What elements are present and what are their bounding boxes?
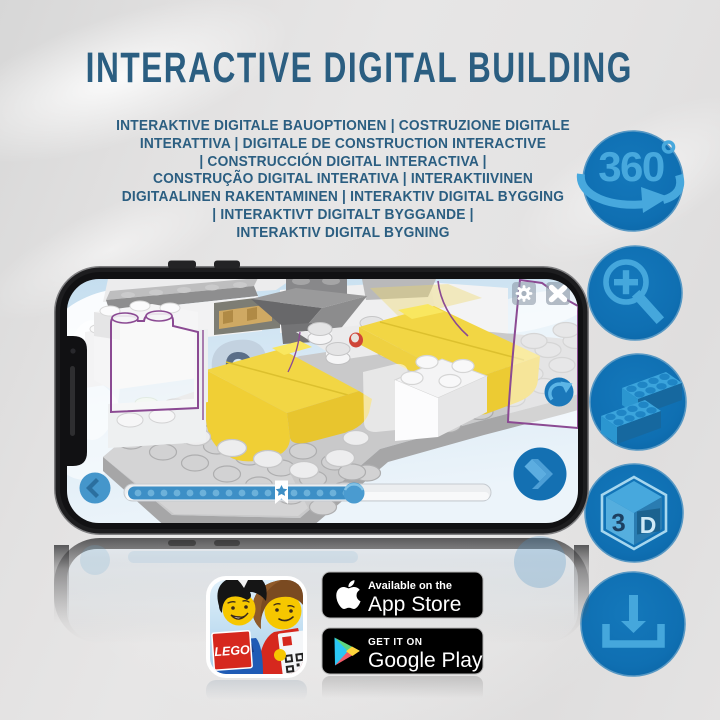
- svg-text:Available on the: Available on the: [368, 580, 452, 592]
- svg-text:Google Play: Google Play: [368, 649, 483, 672]
- svg-text:GET IT ON: GET IT ON: [368, 637, 423, 648]
- svg-text:LEGO: LEGO: [214, 643, 251, 659]
- svg-text:360: 360: [598, 143, 664, 190]
- svg-text:App Store: App Store: [368, 593, 461, 616]
